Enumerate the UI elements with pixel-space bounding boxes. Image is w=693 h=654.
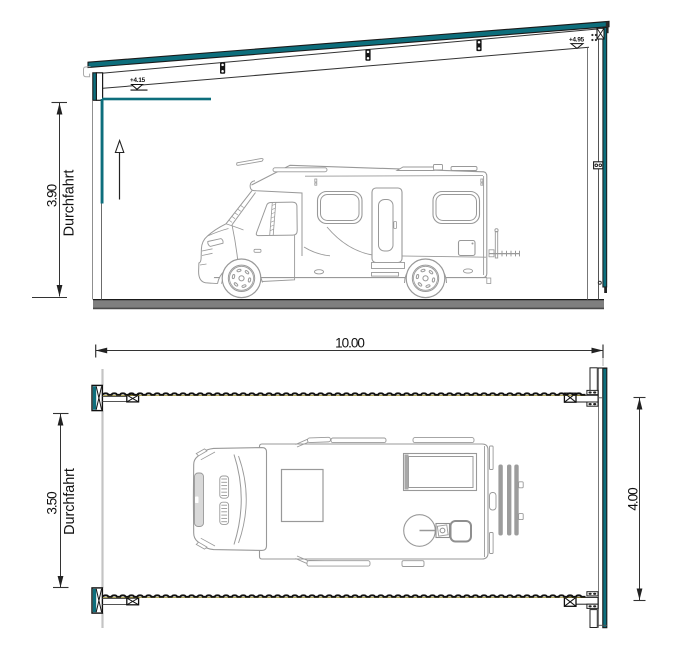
svg-text:3.90: 3.90 bbox=[44, 184, 59, 207]
svg-text:3.50: 3.50 bbox=[44, 492, 59, 515]
svg-text:10.00: 10.00 bbox=[335, 336, 364, 351]
svg-text:Durchfahrt: Durchfahrt bbox=[61, 170, 77, 237]
svg-text:+4.15: +4.15 bbox=[130, 77, 146, 84]
svg-text:+4.95: +4.95 bbox=[569, 37, 585, 44]
svg-text:4.00: 4.00 bbox=[626, 488, 641, 511]
svg-text:Durchfahrt: Durchfahrt bbox=[62, 468, 78, 535]
